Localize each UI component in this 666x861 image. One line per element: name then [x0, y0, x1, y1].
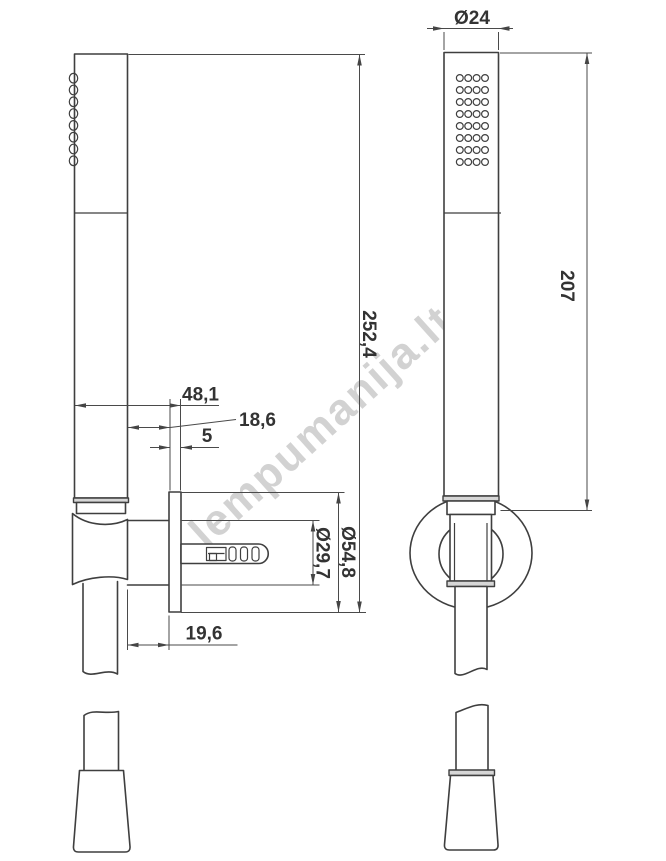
front-view [410, 53, 532, 851]
dim-head-diameter: Ø24 [454, 8, 490, 29]
holder-flange-front [447, 581, 495, 587]
handset-neck-front [447, 501, 495, 515]
hose-side [83, 582, 118, 675]
watermark: lempumanija.lt [180, 296, 463, 557]
dim-plate-outer: Ø54,8 [337, 526, 358, 578]
dim-handle-length: 207 [556, 270, 577, 302]
holder-bracket-front [450, 515, 492, 582]
handset-neck-side [77, 503, 126, 514]
hose-end-front [456, 705, 488, 770]
dim-overall-height: 252,4 [358, 310, 379, 358]
hose-cone-front [444, 776, 498, 851]
drawing-canvas: lempumanija.lt [0, 0, 666, 861]
handset-body-side [75, 54, 128, 498]
dim-offset-wall: 48,1 [182, 385, 219, 406]
hose-band-front [449, 770, 495, 776]
technical-drawing: lempumanija.lt [0, 0, 666, 861]
dim-holder-offset: 18,6 [239, 410, 276, 431]
handset-body-front [444, 53, 499, 497]
wall-plate-side [169, 492, 181, 612]
dim-plate-thickness: 5 [202, 426, 213, 447]
side-view [69, 54, 268, 852]
hose-front [455, 587, 487, 676]
dimensions: Ø24 207 252,4 Ø54,8 Ø29,7 48,1 18,6 [75, 8, 592, 650]
dim-plate-inner: Ø29,7 [312, 527, 333, 579]
hose-end-side [84, 712, 119, 771]
holder-body-side [73, 514, 128, 585]
dim-holder-depth: 19,6 [186, 624, 223, 645]
hose-cone-side [73, 771, 130, 853]
